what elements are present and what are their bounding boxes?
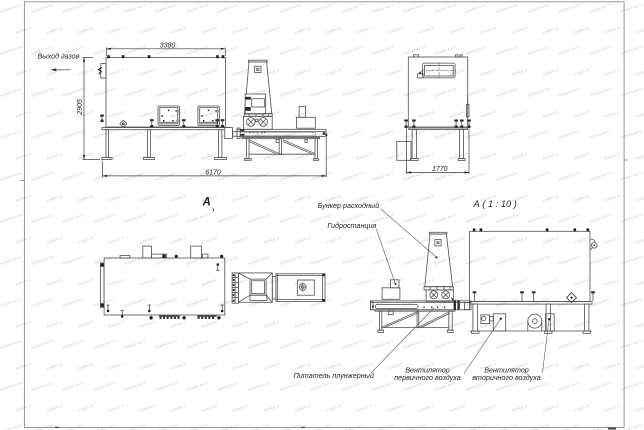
svg-text:2905: 2905 bbox=[77, 99, 84, 116]
svg-text:Бункер расходный: Бункер расходный bbox=[318, 201, 380, 210]
svg-text:Выход газов: Выход газов bbox=[38, 52, 80, 61]
svg-text:1770: 1770 bbox=[432, 166, 448, 173]
svg-text:6170: 6170 bbox=[205, 169, 221, 176]
svg-text:А ( 1 : 10 ): А ( 1 : 10 ) bbox=[473, 199, 517, 209]
svg-text:Гидростанция: Гидростанция bbox=[327, 221, 376, 230]
svg-text:Питатель плунжерный: Питатель плунжерный bbox=[294, 371, 374, 380]
svg-text:первичного воздуха: первичного воздуха bbox=[394, 373, 461, 382]
svg-text:3380: 3380 bbox=[160, 42, 176, 49]
svg-text:А: А bbox=[202, 197, 211, 209]
svg-text:вторичного воздуха: вторичного воздуха bbox=[472, 373, 540, 382]
